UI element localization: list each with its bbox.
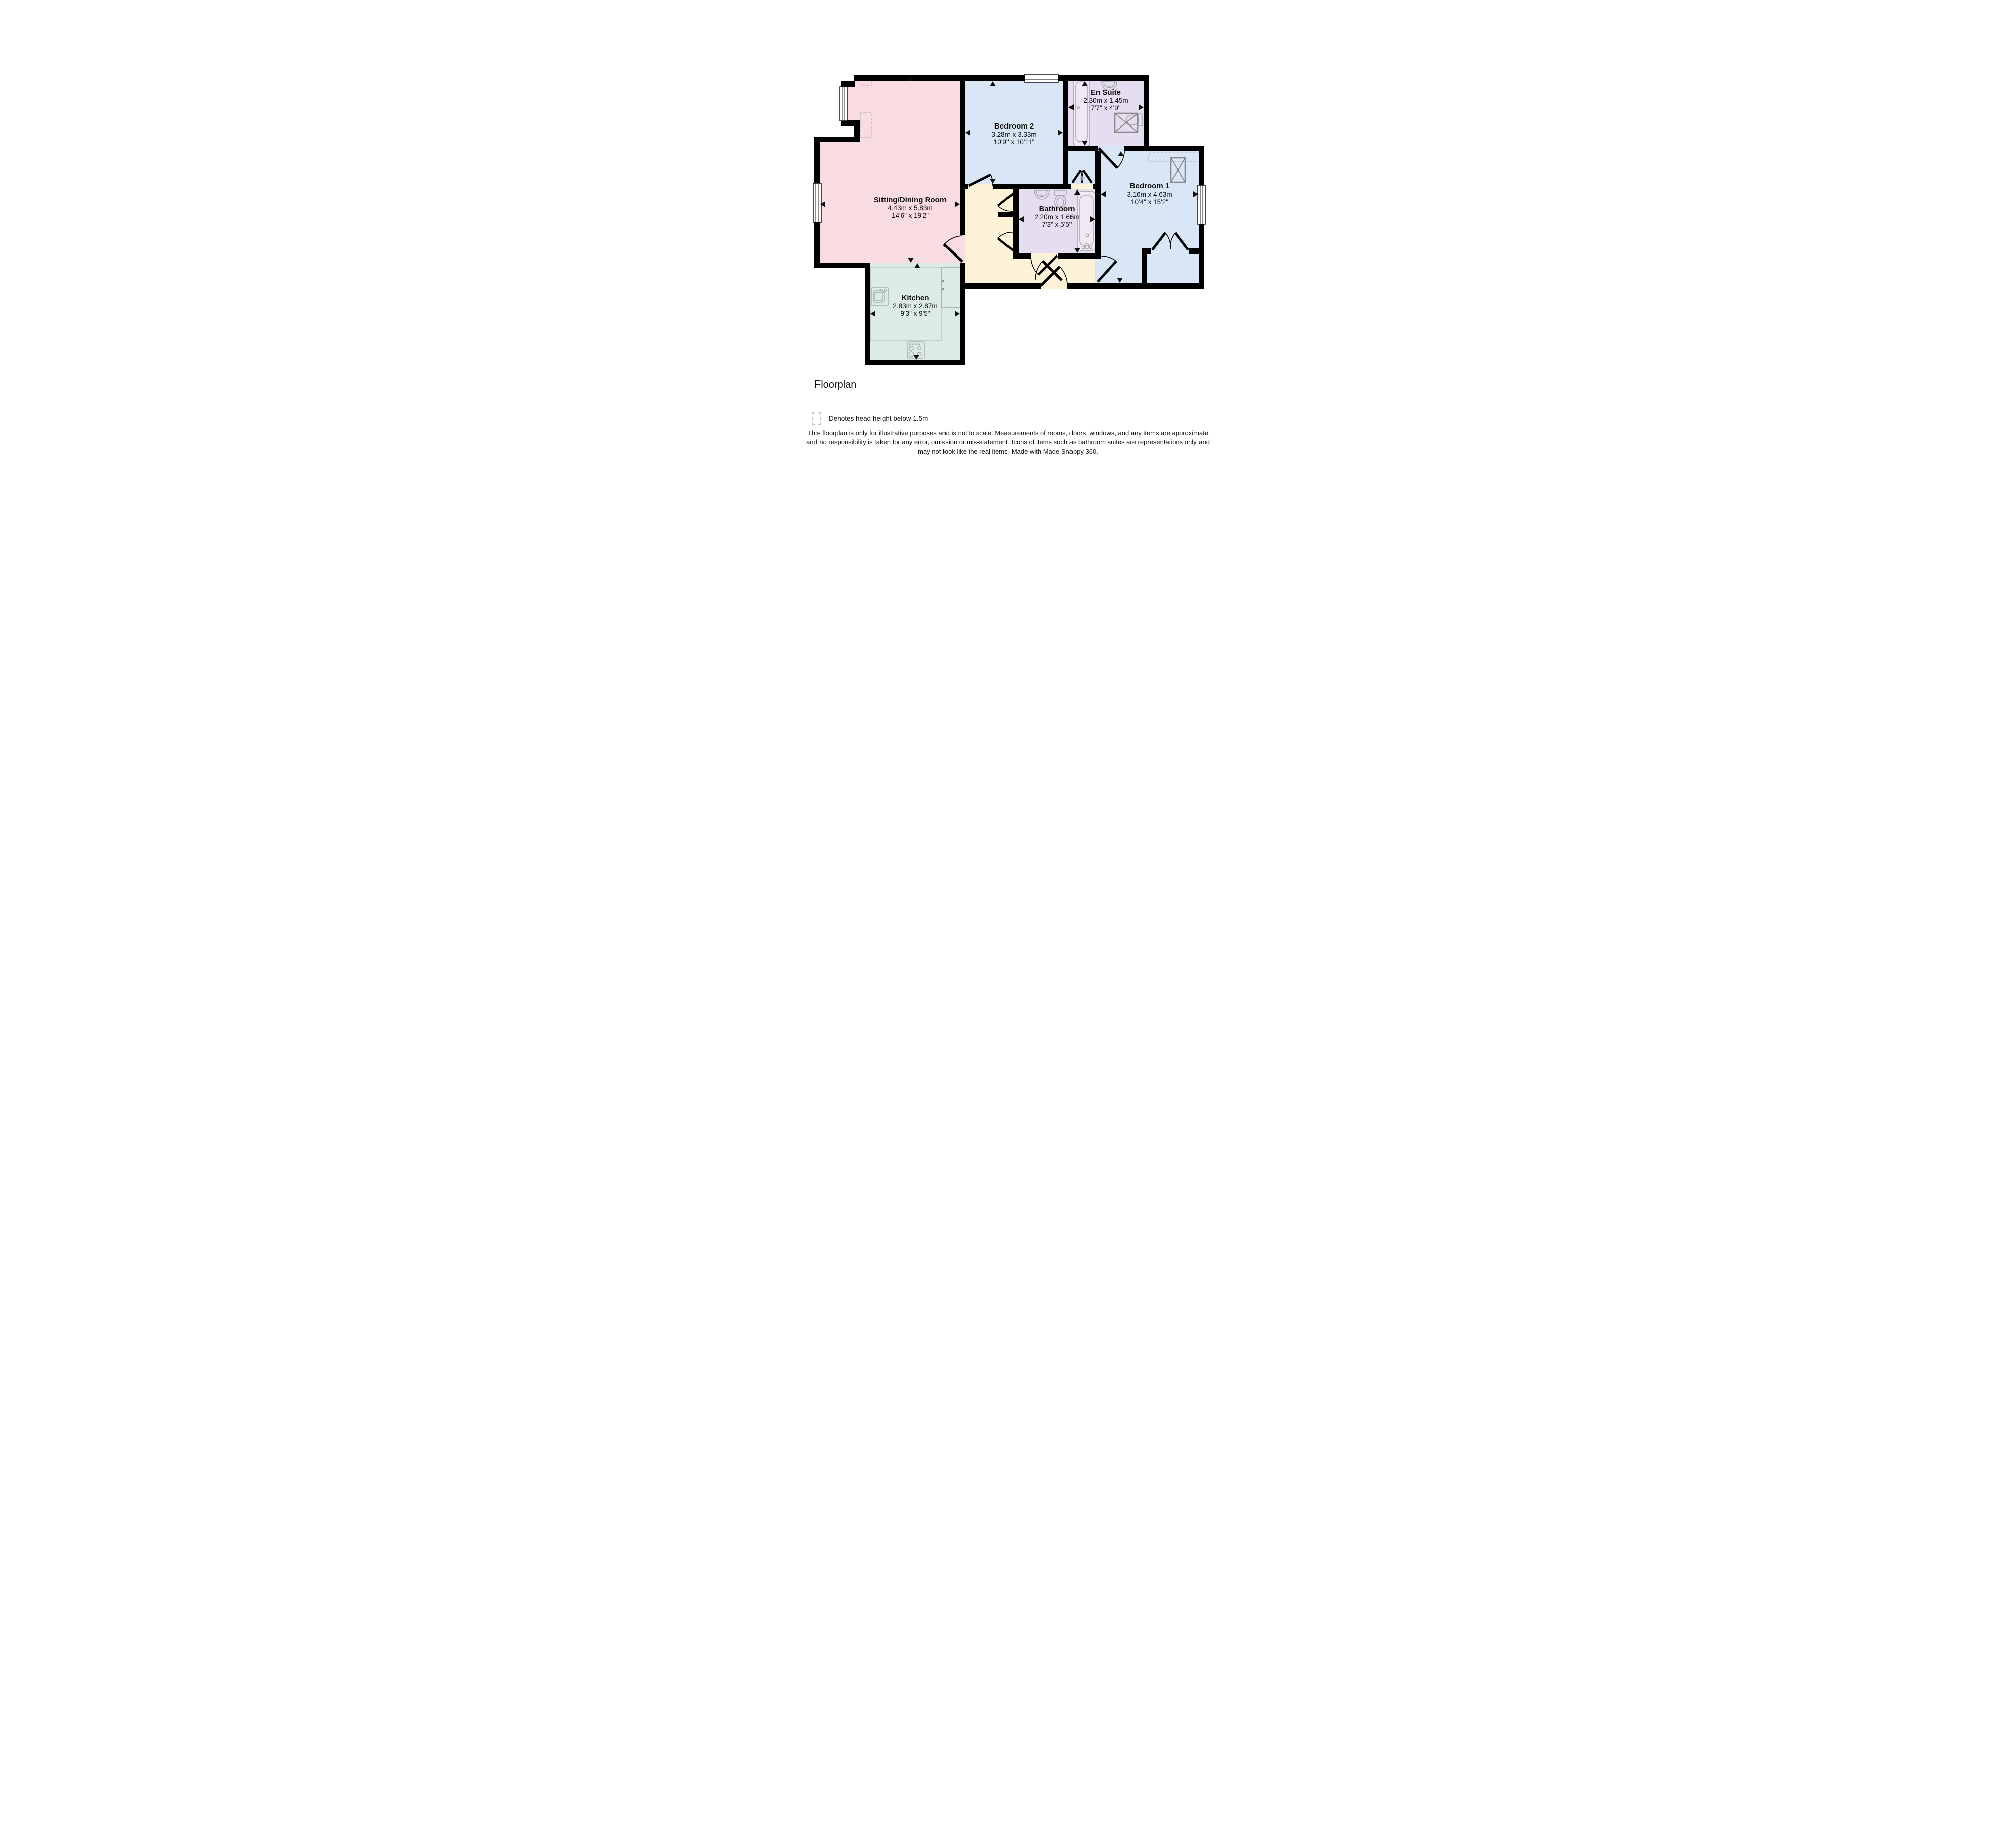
dashed-rect-icon — [812, 412, 821, 425]
window-icon — [1025, 74, 1058, 82]
disclaimer-line: and no responsibility is taken for any e… — [756, 438, 1260, 447]
legend-text: Denotes head height below 1.5m — [829, 415, 928, 422]
cabinet-knob — [942, 280, 944, 282]
window-icon — [840, 87, 847, 121]
window-icon — [813, 183, 821, 222]
bath-icon — [1073, 77, 1090, 146]
disclaimer-line: This floorplan is only for illustrative … — [756, 429, 1260, 438]
disclaimer: This floorplan is only for illustrative … — [756, 429, 1260, 456]
doorway-fill — [1071, 184, 1093, 189]
window-icon — [1198, 185, 1205, 224]
disclaimer-line: may not look like the real items. Made w… — [756, 447, 1260, 456]
floorplan-drawing — [756, 0, 1260, 462]
cabinet-knob — [942, 288, 944, 290]
page-title: Floorplan — [814, 379, 856, 391]
bedroom-2-area — [965, 81, 1063, 184]
legend: Denotes head height below 1.5m — [812, 412, 928, 425]
cabinet-icon — [942, 268, 960, 307]
floorplan-page: Sitting/Dining Room 4.43m x 5.83m 14'6" … — [756, 0, 1260, 462]
doorway-fill — [1041, 283, 1067, 289]
room-areas — [820, 81, 1199, 360]
inner-closet-area — [1068, 151, 1095, 184]
bath-icon — [1077, 192, 1096, 250]
